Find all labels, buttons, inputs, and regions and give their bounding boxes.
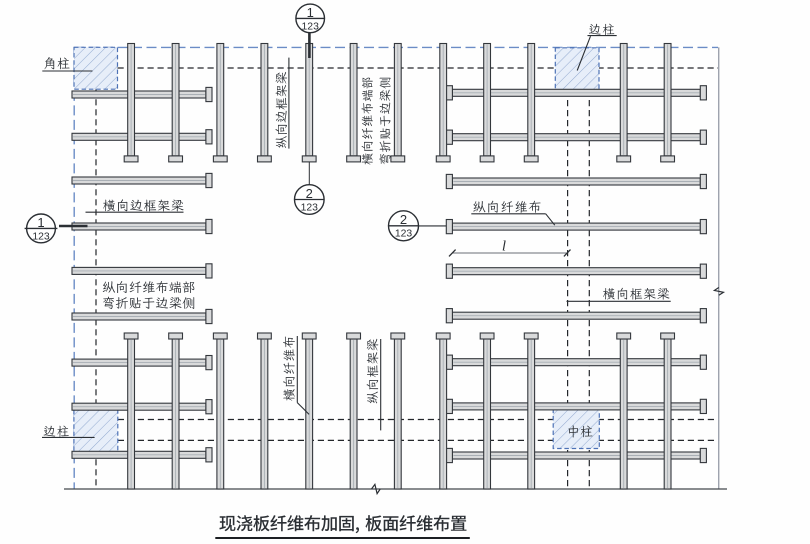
svg-text:123: 123	[302, 21, 320, 32]
svg-text:2: 2	[306, 186, 313, 201]
svg-text:2: 2	[400, 212, 407, 227]
svg-text:123: 123	[395, 229, 413, 240]
svg-text:1: 1	[307, 5, 314, 20]
svg-text:123: 123	[32, 231, 50, 242]
svg-text:123: 123	[301, 202, 319, 213]
svg-text:l: l	[502, 239, 506, 255]
svg-text:1: 1	[37, 215, 44, 230]
